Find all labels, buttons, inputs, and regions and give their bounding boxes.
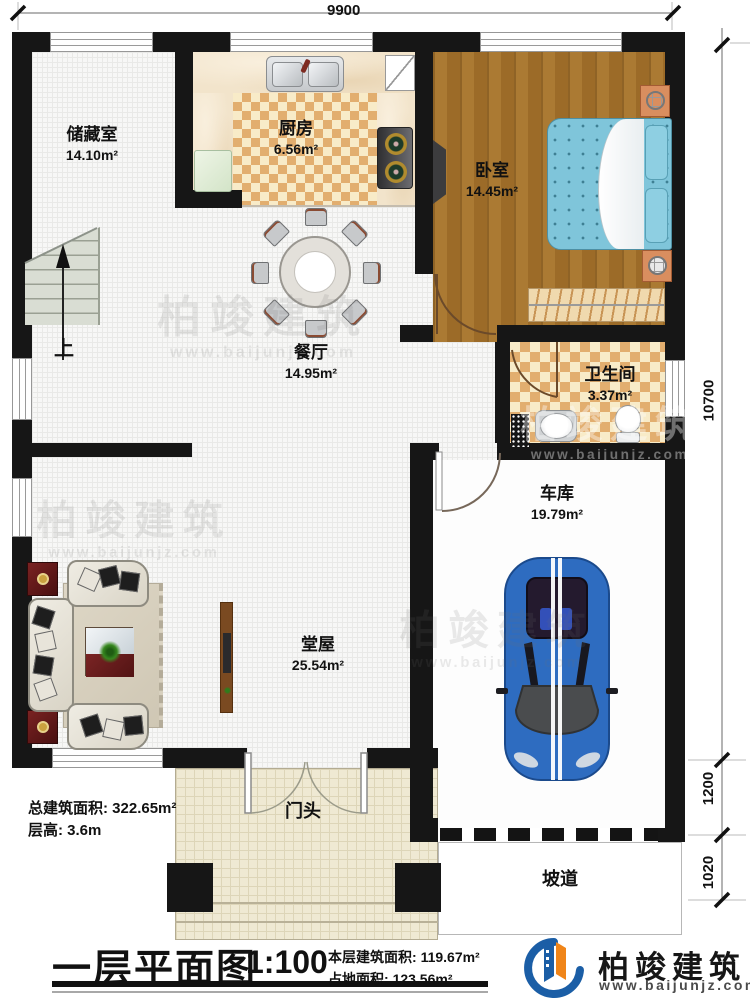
brand-url: www.baijunjz.com <box>599 977 750 993</box>
dining-chair <box>305 320 327 338</box>
dimension-right-bottom: 1020 <box>700 856 717 889</box>
wall <box>495 342 510 443</box>
porch-step-line <box>175 921 438 923</box>
tv-screen <box>223 633 231 673</box>
wall <box>497 325 665 342</box>
wall <box>12 748 52 768</box>
stat-total-area: 总建筑面积: 322.65m² <box>28 797 176 818</box>
lamp <box>648 256 667 275</box>
bathroom-sink <box>535 410 577 442</box>
window-bathroom <box>665 360 685 417</box>
table-medallion <box>37 573 49 585</box>
window-hall-front <box>52 748 163 768</box>
dining-table <box>279 236 351 308</box>
room-label-porch: 门头 <box>285 800 321 823</box>
wall <box>25 443 192 457</box>
wall <box>433 443 439 460</box>
plant-small <box>224 687 231 694</box>
stat-floor-height: 层高: 3.6m <box>28 819 101 840</box>
room-label-ramp: 坡道 <box>542 868 578 891</box>
wall <box>373 32 480 52</box>
stove <box>377 127 413 189</box>
sink-basin <box>272 62 303 87</box>
sofa-pillow <box>34 630 57 653</box>
room-label-dining: 餐厅 14.95m² <box>285 342 337 382</box>
toilet-tank <box>616 432 640 443</box>
dimension-right-mid: 1200 <box>700 772 717 805</box>
side-table <box>27 710 58 744</box>
toilet <box>615 405 641 443</box>
window-kitchen <box>230 32 373 52</box>
stairs-up-label: 上 <box>54 336 74 362</box>
wall <box>658 828 685 842</box>
wall <box>163 748 247 768</box>
stat-footprint-area: 占地面积: 123.56m² <box>328 969 453 989</box>
room-label-kitchen: 厨房 6.56m² <box>274 118 318 158</box>
wardrobe-rail <box>529 304 664 306</box>
sofa-pillow <box>102 718 125 741</box>
burner <box>385 161 407 183</box>
tv-cabinet <box>220 602 233 713</box>
room-label-bedroom: 卧室 14.45m² <box>466 160 518 200</box>
room-label-bathroom: 卫生间 3.37m² <box>585 364 636 404</box>
wall <box>415 52 433 274</box>
porch-column <box>395 863 441 912</box>
stat-this-floor-area: 本层建筑面积: 119.67m² <box>328 947 480 967</box>
wall <box>400 325 433 342</box>
porch-floor <box>175 768 438 940</box>
side-table <box>27 562 58 596</box>
sofa-pillow <box>33 655 55 677</box>
wall <box>410 818 438 842</box>
dining-table-center <box>294 251 336 293</box>
brand-logo-icon <box>516 934 590 1000</box>
window-storage <box>50 32 153 52</box>
burner <box>385 133 407 155</box>
sofa-pillow <box>123 715 144 736</box>
plant <box>99 641 121 663</box>
lamp <box>646 91 665 110</box>
wall <box>175 52 193 192</box>
nightstand <box>640 85 670 117</box>
dimension-top: 9900 <box>327 2 360 19</box>
wall <box>410 443 433 842</box>
toilet-bowl <box>615 405 641 433</box>
dining-chair <box>363 262 381 284</box>
room-label-storage: 储藏室 14.10m² <box>66 124 118 164</box>
wall <box>175 190 242 208</box>
bed-pillow <box>645 125 668 180</box>
coffee-table <box>85 627 133 676</box>
porch-column <box>167 863 213 912</box>
bedroom-tv <box>433 140 446 204</box>
sofa-pillow <box>119 571 140 592</box>
kitchen-threshold-line <box>240 205 415 207</box>
fridge <box>194 150 232 192</box>
window-left-upper <box>12 358 32 420</box>
sink-basin <box>308 62 339 87</box>
floor-plan-canvas: 柏竣建筑 www.baijunjz.com 柏竣建筑 www.baijunjz.… <box>0 0 750 1006</box>
window-bedroom <box>480 32 622 52</box>
brand-logo: 柏竣建筑 www.baijunjz.com <box>516 934 746 1000</box>
kitchen-sink <box>266 56 344 92</box>
dimension-right-total: 10700 <box>700 380 717 422</box>
title-scale: 1:100 <box>246 944 328 981</box>
table-medallion <box>37 721 49 733</box>
title-underline-thin <box>52 991 488 993</box>
nightstand <box>642 250 672 282</box>
dining-chair <box>305 208 327 226</box>
sink-bowl <box>540 413 573 439</box>
wall <box>153 32 230 52</box>
room-label-hall: 堂屋 25.54m² <box>292 634 344 674</box>
duct-box <box>385 55 415 91</box>
dining-chair <box>251 262 269 284</box>
vent-shaft <box>511 414 529 447</box>
garage-door-dashed <box>440 828 658 841</box>
room-label-garage: 车库 19.79m² <box>531 483 583 523</box>
wardrobe <box>528 288 665 322</box>
window-left-lower <box>12 478 32 537</box>
bed-pillow <box>645 188 668 243</box>
